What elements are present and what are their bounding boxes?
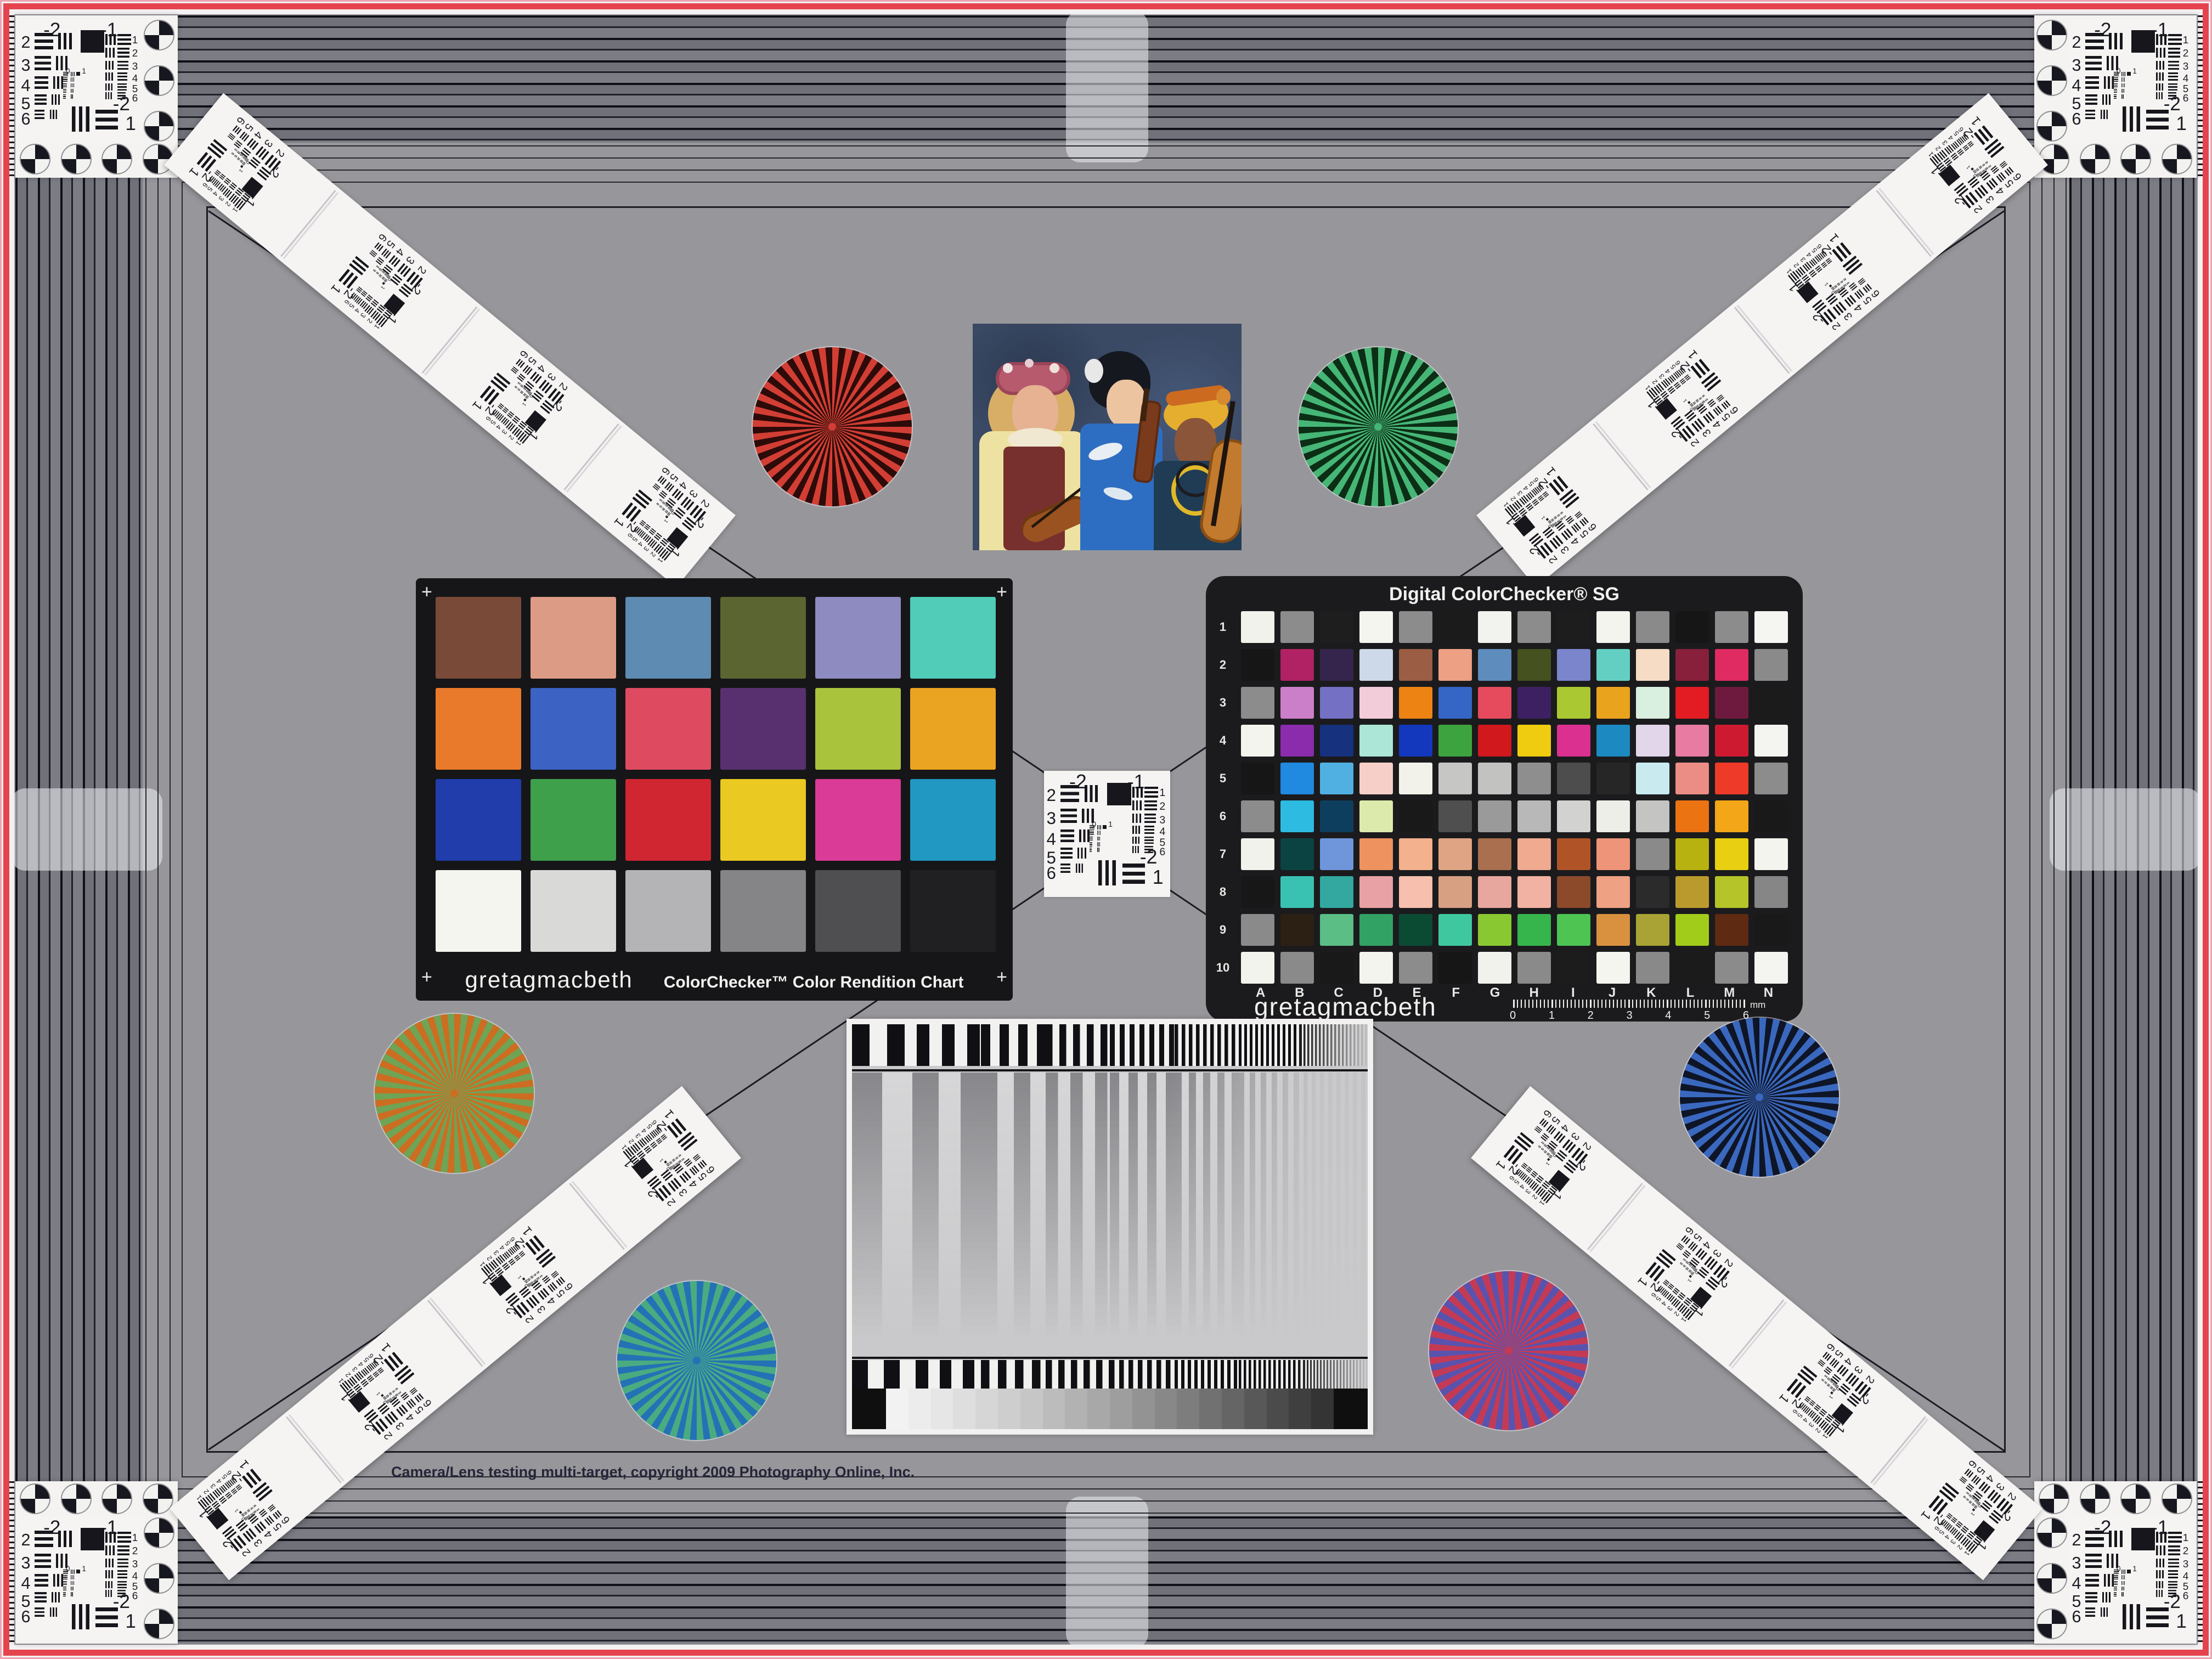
gray-step xyxy=(886,1389,909,1429)
quad-circle-mark xyxy=(2080,144,2111,174)
bar-group xyxy=(1144,787,1158,798)
bar-group xyxy=(1060,848,1073,859)
sg-color-patch xyxy=(1517,687,1551,719)
bar-group xyxy=(1144,837,1154,844)
bar-group xyxy=(1580,517,1589,526)
bar-group xyxy=(1815,266,1822,273)
usaf-number: 1 xyxy=(1108,821,1113,828)
sg-color-patch xyxy=(1636,763,1669,794)
tick-ruler xyxy=(2198,1481,2204,1644)
sg-color-patch xyxy=(1399,800,1432,832)
bars-segment xyxy=(1110,1360,1175,1390)
bar-group xyxy=(1703,411,1715,424)
sg-color-patch xyxy=(1596,876,1630,908)
tick-ruler xyxy=(2198,15,2204,178)
color-patch xyxy=(531,597,616,679)
usaf-number: 1 xyxy=(132,36,138,46)
ruler-number: 1 xyxy=(1549,1009,1555,1022)
strip-separator xyxy=(286,1417,342,1484)
bar-group xyxy=(2121,1570,2125,1574)
usaf-label: 1 xyxy=(612,516,627,529)
bar-group xyxy=(2102,94,2111,105)
bar-group xyxy=(2085,110,2095,119)
color-patch xyxy=(720,779,806,861)
bar-group xyxy=(35,1607,44,1617)
bar-group xyxy=(72,1604,89,1629)
usaf-number: 2 xyxy=(2072,1532,2081,1549)
star-center-dot xyxy=(1374,423,1382,431)
bar-group xyxy=(1132,826,1140,834)
bar-group xyxy=(2123,106,2140,131)
bar-group xyxy=(63,94,66,99)
bar-group xyxy=(675,1156,678,1160)
bar-group xyxy=(1077,848,1086,859)
strip-separator xyxy=(1734,307,1790,374)
bar-group xyxy=(224,178,231,185)
bar-group xyxy=(381,248,392,258)
bar-group xyxy=(1849,282,1858,291)
bar-group xyxy=(2005,167,2013,176)
sg-color-patch xyxy=(1715,952,1748,984)
brand-text: gretagmacbeth xyxy=(1254,992,1437,1022)
bar-group xyxy=(1691,418,1706,432)
bar-group xyxy=(1823,1352,1832,1361)
bar-group xyxy=(1971,1475,1982,1485)
bar-group xyxy=(379,268,382,271)
sg-color-patch xyxy=(1241,800,1274,832)
bar-group xyxy=(1531,1171,1538,1178)
sg-color-patch xyxy=(1241,687,1274,719)
usaf-number: 0 xyxy=(66,1565,70,1573)
bar-group xyxy=(360,290,367,297)
usaf-number: 4 xyxy=(21,1575,31,1592)
bar-group xyxy=(523,365,533,375)
usaf-number: 6 xyxy=(132,1592,138,1602)
sg-color-patch xyxy=(1596,914,1630,946)
quad-circle-mark xyxy=(2036,111,2067,142)
ruler-number: 0 xyxy=(1510,1009,1516,1022)
sg-color-patch xyxy=(1636,649,1669,681)
sg-color-patch xyxy=(1557,800,1590,832)
bar-group xyxy=(2114,1592,2117,1596)
sg-color-patch xyxy=(1754,952,1788,984)
bar-group xyxy=(71,89,74,93)
cello-scroll xyxy=(1216,388,1231,405)
sg-color-patch xyxy=(1320,952,1353,984)
bar-group xyxy=(1076,864,1083,873)
bar-group xyxy=(647,1176,662,1189)
bar-group xyxy=(264,1516,275,1526)
color-patch xyxy=(815,779,901,861)
black-square xyxy=(2131,1528,2155,1550)
bar-group xyxy=(1965,1469,1973,1477)
bar-group xyxy=(53,1574,63,1587)
bar-group xyxy=(1996,172,2006,183)
sg-col-label: F xyxy=(1436,985,1475,1001)
bar-group xyxy=(395,1388,398,1391)
sg-color-patch xyxy=(1517,914,1551,946)
gray-step xyxy=(1222,1389,1244,1429)
bar-group xyxy=(542,1275,551,1284)
sg-color-patch xyxy=(1399,687,1432,719)
quad-circle-mark xyxy=(2080,1483,2111,1514)
bar-group xyxy=(502,1262,510,1271)
bar-group xyxy=(1560,512,1563,515)
usaf-number: 3 xyxy=(132,62,138,72)
sg-color-patch xyxy=(1320,763,1353,794)
bar-group xyxy=(394,1365,415,1385)
bar-group xyxy=(2156,1581,2163,1589)
usaf-number: 6 xyxy=(2183,1592,2189,1602)
sg-row-label: 1 xyxy=(1220,620,1226,634)
bar-group xyxy=(35,76,48,89)
bar-group xyxy=(698,1160,707,1169)
bar-group xyxy=(400,1392,409,1401)
bar-group xyxy=(536,1249,556,1268)
usaf-label: 1 xyxy=(470,399,484,413)
red-siemens-star xyxy=(753,347,912,506)
bar-group xyxy=(2109,1531,2122,1548)
bar-group xyxy=(2000,161,2007,168)
usaf-number: 6 xyxy=(21,111,31,128)
bar-group xyxy=(1988,165,1991,168)
sg-color-patch xyxy=(1320,649,1353,681)
sg-color-patch xyxy=(1359,952,1393,984)
bar-group xyxy=(1846,1373,1860,1387)
mini-square xyxy=(1830,1391,1834,1395)
bar-group xyxy=(376,266,380,269)
bar-group xyxy=(360,1379,369,1387)
bar-group xyxy=(1557,514,1560,517)
strip-separator xyxy=(1870,1417,1926,1484)
usaf-number: 1 xyxy=(2132,1565,2137,1573)
bar-group xyxy=(52,1592,60,1602)
gray-step xyxy=(1087,1389,1110,1429)
bar-group xyxy=(2114,1575,2118,1579)
sg-color-patch xyxy=(1557,952,1590,984)
sg-color-patch xyxy=(1715,611,1748,643)
sg-color-patch xyxy=(1478,800,1511,832)
tick-ruler xyxy=(8,15,14,178)
gray-step xyxy=(1199,1389,1222,1429)
sg-color-patch xyxy=(1754,800,1788,832)
bar-group xyxy=(1090,837,1093,841)
usaf-label: 1 xyxy=(1543,465,1558,478)
usaf-label: 1 xyxy=(2176,114,2187,133)
bar-group xyxy=(1854,289,1865,300)
bar-group xyxy=(2121,1592,2124,1596)
usaf-label: 1 xyxy=(187,166,201,179)
bar-group xyxy=(1809,269,1817,278)
sg-color-patch xyxy=(1399,838,1432,870)
color-patch xyxy=(910,597,996,679)
colorchecker-24-chart: + + + + gretagmacbeth ColorChecker™ Colo… xyxy=(416,578,1013,1001)
bar-group xyxy=(1974,185,1989,199)
bar-group xyxy=(1676,1243,1684,1250)
sg-color-patch xyxy=(1478,687,1511,719)
sg-color-patch xyxy=(1280,952,1314,984)
bar-group xyxy=(2085,56,2101,70)
quad-circle-mark xyxy=(2162,144,2192,174)
sg-color-patch xyxy=(1438,763,1472,794)
bar-group xyxy=(511,366,519,374)
bar-group xyxy=(1679,378,1686,385)
bar-group xyxy=(1565,516,1574,524)
bar-group xyxy=(273,1510,282,1519)
color-patch xyxy=(625,870,711,952)
bar-group xyxy=(1541,1133,1549,1142)
usaf-label: 1 xyxy=(2176,1612,2187,1631)
bar-group xyxy=(398,1392,401,1395)
usaf-number: 2 xyxy=(21,1532,31,1549)
usaf-number: 2 xyxy=(132,49,138,59)
mini-square xyxy=(1103,825,1107,829)
bar-group xyxy=(1526,503,1534,511)
sg-col-label: L xyxy=(1671,985,1709,1001)
bar-group xyxy=(531,1276,534,1279)
usaf-number: 3 xyxy=(2072,1555,2081,1572)
bar-group xyxy=(1985,167,1988,171)
registration-notch-right xyxy=(2050,788,2201,871)
bar-group xyxy=(105,1590,112,1597)
sg-color-patch xyxy=(1241,763,1274,794)
sg-col-label: J xyxy=(1593,985,1632,1001)
sg-color-patch xyxy=(1596,800,1630,832)
sg-color-patch xyxy=(1359,800,1393,832)
bar-group xyxy=(117,1570,127,1578)
gray-step xyxy=(931,1389,953,1429)
usaf-number: 1 xyxy=(2183,36,2189,46)
usaf-number: 1 xyxy=(82,1565,86,1573)
usaf-number: 4 xyxy=(2072,1575,2081,1592)
usaf-number: 2 xyxy=(21,34,31,51)
sg-color-patch xyxy=(1320,725,1353,757)
bar-group xyxy=(2085,1554,2101,1568)
usaf-number: 0 xyxy=(66,67,70,75)
sg-row-label: 10 xyxy=(1216,961,1229,975)
usaf-number: 0 xyxy=(2117,67,2121,75)
bars-segment xyxy=(981,1360,1046,1390)
usaf-number: 1 xyxy=(1545,1161,1550,1166)
bar-group xyxy=(71,1587,74,1591)
sg-color-patch xyxy=(1359,611,1393,643)
usaf-number: 4 xyxy=(2183,74,2189,84)
usaf-label: 1 xyxy=(236,1458,251,1471)
bar-group xyxy=(680,496,695,511)
bar-group xyxy=(1097,837,1101,841)
black-square xyxy=(2131,30,2155,53)
bar-group xyxy=(35,1574,48,1587)
sg-color-patch xyxy=(1280,876,1314,908)
sg-color-patch xyxy=(1557,687,1590,719)
bar-group xyxy=(1963,1496,1967,1498)
sg-color-patch xyxy=(1715,838,1748,870)
fade-overlay xyxy=(1295,1024,1368,1066)
bar-group xyxy=(105,1532,116,1543)
bar-group xyxy=(1844,295,1857,307)
star-center-dot xyxy=(450,1090,458,1097)
bar-group xyxy=(376,272,379,275)
bar-group xyxy=(1954,183,1968,196)
color-patch xyxy=(531,688,616,770)
sg-color-patch xyxy=(1478,611,1511,643)
bar-group xyxy=(1818,1359,1826,1367)
bar-group xyxy=(1085,785,1098,802)
usaf-label: -2 xyxy=(1140,848,1158,867)
quad-circle-mark xyxy=(2036,65,2067,96)
corner-resolution-card: -2-123456123456-2101 xyxy=(15,15,178,178)
bar-group xyxy=(117,1532,131,1543)
bar-group xyxy=(388,1392,392,1396)
mini-square xyxy=(1689,1274,1692,1278)
bars-segment xyxy=(1046,1360,1110,1390)
usaf-label: -2 xyxy=(2164,1592,2181,1611)
bar-group xyxy=(1685,1261,1689,1264)
sg-color-patch xyxy=(1596,838,1630,870)
bar-group xyxy=(2156,1545,2165,1555)
bar-group xyxy=(1562,1139,1576,1153)
bar-group xyxy=(1681,1235,1690,1244)
bar-group xyxy=(234,140,242,149)
sg-color-patch xyxy=(1478,914,1511,946)
usaf-label: 1 xyxy=(1685,348,1700,362)
color-patch xyxy=(625,688,711,770)
bar-group xyxy=(1549,535,1564,549)
bar-group xyxy=(233,125,241,134)
bar-group xyxy=(1526,1166,1532,1173)
bar-group xyxy=(1984,139,2005,158)
bar-group xyxy=(684,1158,692,1167)
bar-group xyxy=(2168,61,2179,70)
sg-color-patch xyxy=(1596,687,1630,719)
sg-color-patch xyxy=(1557,763,1590,794)
usaf-pattern: -2-123456123456-2101 xyxy=(1044,771,1170,897)
sg-color-patch xyxy=(1557,725,1590,757)
sg-color-patch xyxy=(1359,687,1393,719)
gray-step xyxy=(1110,1389,1132,1429)
bar-group xyxy=(1987,1489,2001,1504)
sg-title: Digital ColorChecker® SG xyxy=(1206,584,1803,605)
bar-group xyxy=(551,1271,559,1278)
bar-group xyxy=(1713,406,1723,416)
bar-group xyxy=(1132,814,1141,823)
sg-row-label: 9 xyxy=(1220,923,1226,937)
sg-color-patch xyxy=(1438,952,1472,984)
registration-circles-col xyxy=(144,20,176,142)
bar-group xyxy=(394,1393,398,1397)
chart-title: ColorChecker™ Color Rendition Chart xyxy=(664,973,964,992)
sg-color-patch xyxy=(1715,725,1748,757)
sg-col-label: I xyxy=(1554,985,1593,1001)
usaf-label: 1 xyxy=(125,1612,136,1631)
bars-segment xyxy=(1239,1024,1304,1066)
bar-group xyxy=(2121,1575,2125,1579)
bar-group xyxy=(1563,515,1566,518)
bar-group xyxy=(219,1496,227,1504)
bar-group xyxy=(650,1142,657,1149)
bar-group xyxy=(1985,161,1988,164)
bar-group xyxy=(2114,77,2118,82)
bar-group xyxy=(239,131,250,142)
sg-color-patch xyxy=(1399,649,1432,681)
color-patch xyxy=(815,688,901,770)
quad-circle-mark xyxy=(20,1483,50,1514)
bar-group xyxy=(2156,1532,2166,1543)
blue-siemens-star xyxy=(1680,1018,1839,1177)
bar-group xyxy=(1678,1292,1686,1300)
bar-group xyxy=(232,153,235,155)
bar-group xyxy=(71,94,73,99)
bar-group xyxy=(2114,89,2117,93)
usaf-label: 1 xyxy=(379,1341,393,1355)
usaf-target: -2-123456123456-2101 xyxy=(19,1516,143,1640)
color-patch xyxy=(436,870,521,952)
musicians-reference-photo xyxy=(973,324,1242,550)
bar-group xyxy=(255,146,269,160)
bar-group xyxy=(1683,1265,1686,1268)
usaf-pattern: -2-123456123456-2101 xyxy=(2069,1516,2193,1640)
bar-group xyxy=(1575,511,1582,519)
bar-group xyxy=(247,1509,250,1513)
sg-color-patch xyxy=(1478,952,1511,984)
bar-group xyxy=(1858,278,1866,285)
sg-color-patch xyxy=(1241,838,1274,870)
bar-group xyxy=(53,76,63,89)
bar-group xyxy=(1957,149,1964,156)
bar-group xyxy=(35,56,50,70)
bar-group xyxy=(2156,1570,2164,1578)
bar-group xyxy=(537,1277,540,1280)
bar-group xyxy=(117,83,127,91)
usaf-number: 0 xyxy=(2117,1565,2121,1573)
gray-step xyxy=(1155,1389,1177,1429)
bar-group xyxy=(258,1509,267,1517)
sg-color-patch xyxy=(1280,649,1314,681)
bar-group xyxy=(681,1158,685,1161)
bar-group xyxy=(1680,1262,1683,1265)
usaf-number: 1 xyxy=(663,518,668,524)
bar-group xyxy=(1843,256,1863,275)
bar-group xyxy=(71,1575,74,1579)
quad-circle-mark xyxy=(2120,1483,2151,1514)
mini-square xyxy=(1972,1508,1976,1512)
bar-group xyxy=(409,1387,417,1395)
bar-group xyxy=(1097,848,1099,852)
bar-group xyxy=(250,1507,253,1510)
bar-group xyxy=(58,33,71,50)
bar-group xyxy=(2085,94,2097,105)
plus-mark: + xyxy=(996,583,1007,601)
bar-group xyxy=(1812,300,1826,313)
strip-separator xyxy=(422,307,478,374)
sg-color-patch xyxy=(1675,876,1709,908)
bar-group xyxy=(1683,1259,1686,1262)
bar-group xyxy=(105,92,112,99)
usaf-label: 1 xyxy=(520,1224,534,1238)
sg-row-label: 8 xyxy=(1220,885,1226,899)
color-patch xyxy=(815,870,901,952)
bar-group xyxy=(1699,397,1702,400)
usaf-pattern: -2-123456123456-2101 xyxy=(2069,19,2193,143)
usaf-number: 2 xyxy=(1047,787,1056,804)
rule-line xyxy=(852,1357,1368,1359)
gray-step xyxy=(1065,1389,1087,1429)
sg-row-label: 2 xyxy=(1220,658,1226,672)
bars-segment xyxy=(981,1024,1046,1066)
mini-square xyxy=(76,1570,80,1573)
sg-color-patch xyxy=(1636,914,1669,946)
bar-group xyxy=(2104,1574,2114,1587)
